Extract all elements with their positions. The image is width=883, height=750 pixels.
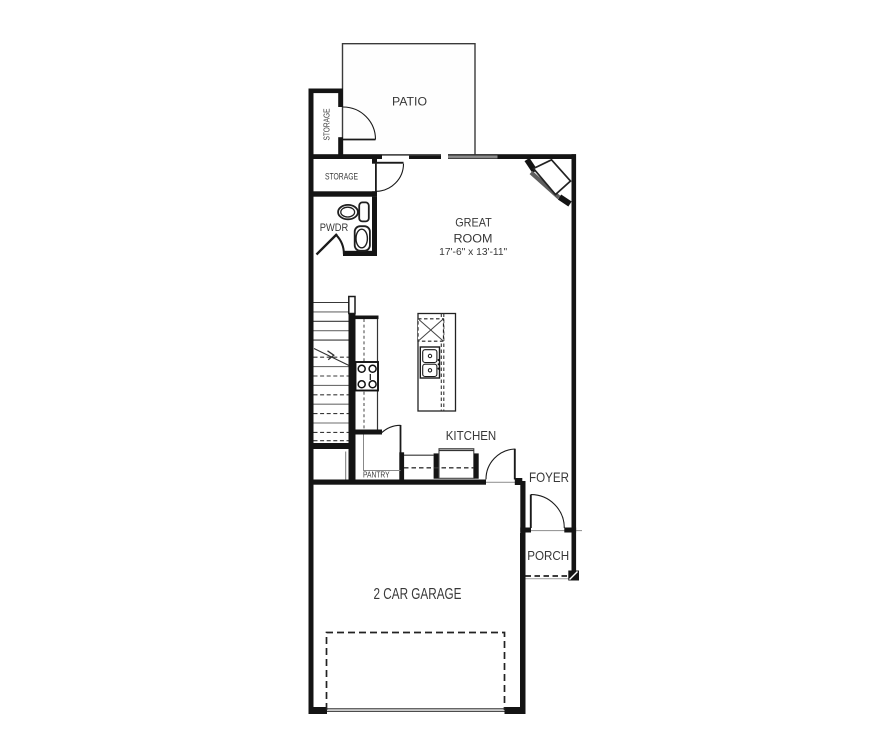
svg-text:STORAGE: STORAGE	[322, 108, 332, 140]
svg-text:FOYER: FOYER	[529, 469, 569, 485]
svg-text:PWDR: PWDR	[320, 222, 349, 234]
svg-text:PATIO: PATIO	[392, 95, 427, 109]
svg-text:2 CAR GARAGE: 2 CAR GARAGE	[374, 586, 462, 603]
svg-text:17'-6" x 13'-11": 17'-6" x 13'-11"	[439, 247, 507, 258]
svg-text:PANTRY: PANTRY	[363, 469, 390, 479]
svg-text:ROOM: ROOM	[454, 232, 493, 246]
svg-text:STORAGE: STORAGE	[325, 171, 358, 182]
svg-text:GREAT: GREAT	[455, 215, 492, 229]
svg-text:KITCHEN: KITCHEN	[446, 429, 497, 443]
svg-text:PORCH: PORCH	[527, 549, 569, 563]
